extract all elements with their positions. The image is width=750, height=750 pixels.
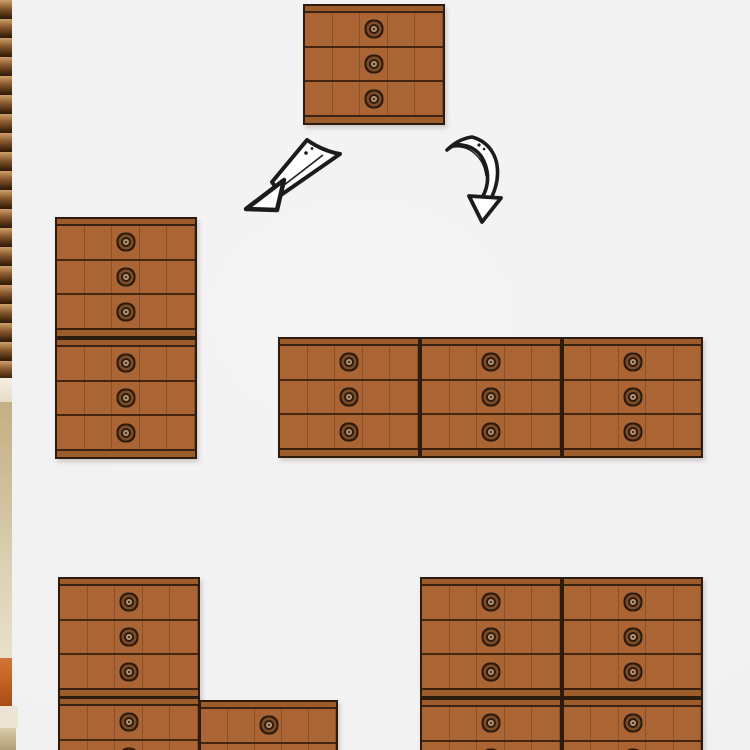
drawer-front-panel — [140, 295, 168, 328]
cabinet-top-trim — [57, 219, 195, 226]
drawer-row — [280, 415, 418, 448]
drawer-knob-icon — [123, 274, 129, 280]
drawer-front-panel — [88, 586, 116, 619]
l-shape-3-module — [199, 700, 338, 750]
drawer-front-panel — [564, 621, 591, 654]
drawer-front-panel — [305, 13, 333, 46]
drawer-front-panel — [564, 586, 591, 619]
drawer-front-panel — [167, 347, 195, 380]
drawer-knob-icon — [123, 430, 129, 436]
cabinet-top-trim — [60, 699, 198, 706]
drawer-front-panel — [60, 741, 88, 750]
drawer-knob-icon — [488, 394, 494, 400]
drawer-knob-icon — [630, 669, 636, 675]
drawer-front-panel — [60, 586, 88, 619]
drawer-front-panel — [591, 655, 618, 688]
drawer-front-panel — [422, 742, 450, 750]
drawer-front-panel — [167, 416, 195, 449]
drawer-front-panel — [363, 381, 391, 414]
drawer-front-panel — [390, 415, 418, 448]
drawer-row — [422, 742, 560, 750]
drawer-front-panel — [422, 621, 450, 654]
drawer-front-panel — [415, 48, 443, 81]
drawer-row — [201, 709, 336, 744]
drawer-knob-icon — [488, 429, 494, 435]
drawer-front-panel — [282, 709, 309, 742]
floor-shadow — [0, 728, 16, 750]
drawer-front-panel — [60, 655, 88, 688]
drawer-front-panel — [280, 381, 308, 414]
drawer-front-panel — [143, 655, 171, 688]
drawer-front-panel — [450, 655, 478, 688]
drawer-row — [57, 347, 195, 382]
drawer-knob-icon — [630, 394, 636, 400]
grid-2x2-module — [562, 577, 703, 698]
cabinet-front — [422, 707, 560, 750]
stack-2-vertical-module — [55, 217, 197, 338]
drawer-front-panel — [564, 707, 591, 740]
cabinet-combination-illustration — [0, 0, 750, 750]
drawer-front-panel — [591, 415, 618, 448]
drawer-row — [201, 744, 336, 750]
drawer-front-panel — [388, 82, 416, 115]
drawer-row — [564, 381, 701, 416]
drawer-front-panel — [305, 82, 333, 115]
drawer-front-panel — [88, 706, 116, 739]
drawer-front-panel — [333, 48, 361, 81]
drawer-knob-icon — [630, 359, 636, 365]
cabinet-front — [564, 586, 701, 688]
drawer-front-panel — [646, 621, 673, 654]
cabinet-base-trim — [280, 448, 418, 456]
drawer-knob-icon — [488, 634, 494, 640]
arrow-sketch-dot — [311, 147, 314, 150]
drawer-row — [564, 742, 701, 750]
cabinet-front — [57, 347, 195, 449]
drawer-row — [280, 346, 418, 381]
drawer-knob-icon — [346, 394, 352, 400]
drawer-front-panel — [564, 742, 591, 750]
cabinet-front — [60, 586, 198, 688]
floor-light — [0, 706, 18, 728]
drawer-row — [60, 706, 198, 741]
drawer-front-panel — [57, 226, 85, 259]
drawer-row — [57, 226, 195, 261]
drawer-front-panel — [619, 742, 646, 750]
drawer-row — [422, 586, 560, 621]
drawer-front-panel — [532, 381, 560, 414]
drawer-front-panel — [309, 709, 336, 742]
drawer-front-panel — [532, 415, 560, 448]
drawer-front-panel — [532, 742, 560, 750]
drawer-front-panel — [280, 346, 308, 379]
drawer-front-panel — [646, 586, 673, 619]
drawer-front-panel — [143, 706, 171, 739]
drawer-front-panel — [505, 381, 533, 414]
drawer-front-panel — [390, 381, 418, 414]
drawer-front-panel — [88, 655, 116, 688]
drawer-front-panel — [450, 346, 478, 379]
drawer-front-panel — [305, 48, 333, 81]
cabinet-top-trim — [564, 700, 701, 707]
drawer-front-panel — [85, 382, 113, 415]
arrow-sketch-dot — [477, 143, 480, 146]
drawer-front-panel — [674, 346, 701, 379]
drawer-row — [564, 415, 701, 448]
drawer-front-panel — [57, 416, 85, 449]
drawer-front-panel — [477, 742, 505, 750]
drawer-front-panel — [140, 261, 168, 294]
drawer-row — [564, 586, 701, 621]
drawer-knob-icon — [126, 634, 132, 640]
drawer-front-panel — [532, 707, 560, 740]
drawer-front-panel — [564, 381, 591, 414]
drawer-row — [422, 381, 560, 416]
cabinet-front — [201, 709, 336, 750]
drawer-front-panel — [88, 621, 116, 654]
drawer-front-panel — [170, 706, 198, 739]
cabinet-base-trim — [60, 688, 198, 696]
row-3-horizontal-module — [278, 337, 420, 458]
drawer-front-panel — [532, 655, 560, 688]
drawer-front-panel — [170, 586, 198, 619]
single-module-module — [303, 4, 445, 125]
drawer-front-panel — [505, 621, 533, 654]
drawer-front-panel — [115, 741, 143, 750]
arrow-sketch-dot — [483, 148, 486, 151]
cabinet-front — [564, 346, 701, 448]
drawer-front-panel — [505, 707, 533, 740]
cream-furniture — [0, 402, 12, 658]
drawer-front-panel — [674, 415, 701, 448]
drawer-front-panel — [646, 655, 673, 688]
drawer-knob-icon — [630, 429, 636, 435]
arrow-down-left-icon — [243, 138, 343, 213]
cabinet-front — [57, 226, 195, 328]
drawer-front-panel — [422, 415, 450, 448]
drawer-front-panel — [505, 742, 533, 750]
drawer-front-panel — [333, 13, 361, 46]
drawer-front-panel — [646, 346, 673, 379]
drawer-row — [57, 416, 195, 449]
drawer-front-panel — [674, 381, 701, 414]
drawer-row — [422, 415, 560, 448]
drawer-front-panel — [450, 586, 478, 619]
drawer-row — [564, 655, 701, 688]
drawer-row — [60, 655, 198, 688]
cabinet-top-trim — [564, 339, 701, 346]
drawer-front-panel — [422, 655, 450, 688]
drawer-row — [305, 13, 443, 48]
drawer-knob-icon — [123, 309, 129, 315]
drawer-front-panel — [60, 706, 88, 739]
drawer-front-panel — [85, 226, 113, 259]
drawer-front-panel — [646, 381, 673, 414]
drawer-front-panel — [60, 621, 88, 654]
drawer-front-panel — [140, 347, 168, 380]
drawer-front-panel — [646, 707, 673, 740]
drawer-front-panel — [201, 744, 228, 750]
drawer-front-panel — [505, 655, 533, 688]
drawer-front-panel — [390, 346, 418, 379]
drawer-front-panel — [170, 741, 198, 750]
drawer-front-panel — [422, 586, 450, 619]
drawer-knob-icon — [346, 429, 352, 435]
cabinet-top-trim — [57, 340, 195, 347]
arrow-head — [246, 180, 284, 210]
drawer-front-panel — [505, 415, 533, 448]
drawer-front-panel — [333, 82, 361, 115]
row-3-horizontal-module — [562, 337, 703, 458]
drawer-front-panel — [143, 586, 171, 619]
drawer-front-panel — [388, 13, 416, 46]
drawer-row — [422, 655, 560, 688]
drawer-knob-icon — [630, 720, 636, 726]
drawer-row — [564, 621, 701, 656]
drawer-front-panel — [422, 707, 450, 740]
drawer-front-panel — [505, 346, 533, 379]
drawer-front-panel — [646, 742, 673, 750]
drawer-front-panel — [140, 226, 168, 259]
drawer-row — [57, 295, 195, 328]
cabinet-top-trim — [422, 700, 560, 707]
row-3-horizontal-module — [420, 337, 562, 458]
drawer-front-panel — [363, 415, 391, 448]
drawer-row — [60, 621, 198, 656]
drawer-front-panel — [450, 707, 478, 740]
drawer-front-panel — [167, 261, 195, 294]
drawer-front-panel — [308, 381, 336, 414]
cabinet-base-trim — [57, 449, 195, 457]
cabinet-base-trim — [564, 448, 701, 456]
cabinet-top-trim — [422, 579, 560, 586]
arrow-sketch-dot — [304, 151, 308, 155]
drawer-front-panel — [57, 347, 85, 380]
cabinet-base-trim — [305, 115, 443, 123]
drawer-front-panel — [532, 586, 560, 619]
cabinet-top-trim — [280, 339, 418, 346]
l-shape-3-module — [58, 697, 200, 750]
orange-cushion — [0, 658, 12, 706]
drawer-front-panel — [167, 226, 195, 259]
drawer-knob-icon — [266, 722, 272, 728]
drawer-front-panel — [308, 415, 336, 448]
arrow-head — [469, 196, 501, 222]
drawer-front-panel — [674, 707, 701, 740]
grid-2x2-module — [420, 698, 562, 750]
drawer-front-panel — [228, 744, 255, 750]
window-glow — [0, 378, 12, 402]
drawer-front-panel — [167, 295, 195, 328]
l-shape-3-module — [58, 577, 200, 698]
drawer-front-panel — [143, 621, 171, 654]
room-photo-edge — [0, 0, 20, 750]
drawer-row — [280, 381, 418, 416]
drawer-front-panel — [415, 82, 443, 115]
drawer-knob-icon — [126, 669, 132, 675]
wooden-blinds — [0, 0, 12, 378]
drawer-front-panel — [415, 13, 443, 46]
drawer-row — [305, 48, 443, 83]
drawer-front-panel — [532, 346, 560, 379]
drawer-front-panel — [140, 382, 168, 415]
drawer-front-panel — [450, 621, 478, 654]
drawer-front-panel — [591, 707, 618, 740]
drawer-front-panel — [85, 416, 113, 449]
drawer-front-panel — [255, 744, 282, 750]
drawer-front-panel — [309, 744, 336, 750]
drawer-row — [57, 261, 195, 296]
drawer-knob-icon — [488, 669, 494, 675]
cabinet-front — [422, 586, 560, 688]
cabinet-front — [564, 707, 701, 750]
drawer-front-panel — [57, 382, 85, 415]
grid-2x2-module — [420, 577, 562, 698]
drawer-row — [305, 82, 443, 115]
drawer-front-panel — [363, 346, 391, 379]
drawer-front-panel — [422, 381, 450, 414]
drawer-knob-icon — [630, 599, 636, 605]
cabinet-top-trim — [201, 702, 336, 709]
drawer-front-panel — [505, 586, 533, 619]
drawer-front-panel — [201, 709, 228, 742]
drawer-front-panel — [450, 415, 478, 448]
drawer-front-panel — [674, 655, 701, 688]
drawer-front-panel — [450, 381, 478, 414]
drawer-front-panel — [167, 382, 195, 415]
drawer-front-panel — [646, 415, 673, 448]
drawer-front-panel — [532, 621, 560, 654]
drawer-front-panel — [591, 381, 618, 414]
drawer-front-panel — [422, 346, 450, 379]
drawer-front-panel — [564, 655, 591, 688]
drawer-knob-icon — [630, 634, 636, 640]
cabinet-front — [60, 706, 198, 750]
cabinet-top-trim — [60, 579, 198, 586]
drawer-front-panel — [88, 741, 116, 750]
drawer-front-panel — [85, 295, 113, 328]
drawer-front-panel — [308, 346, 336, 379]
drawer-front-panel — [85, 261, 113, 294]
drawer-front-panel — [450, 742, 478, 750]
drawer-row — [422, 346, 560, 381]
drawer-row — [564, 707, 701, 742]
grid-2x2-module — [562, 698, 703, 750]
drawer-front-panel — [170, 655, 198, 688]
drawer-front-panel — [170, 621, 198, 654]
drawer-row — [564, 346, 701, 381]
drawer-front-panel — [674, 621, 701, 654]
drawer-front-panel — [85, 347, 113, 380]
drawer-front-panel — [282, 744, 309, 750]
cabinet-base-trim — [422, 688, 560, 696]
drawer-front-panel — [674, 586, 701, 619]
drawer-knob-icon — [123, 395, 129, 401]
drawer-front-panel — [57, 261, 85, 294]
drawer-row — [422, 707, 560, 742]
drawer-row — [60, 741, 198, 750]
drawer-row — [57, 382, 195, 417]
cabinet-base-trim — [564, 688, 701, 696]
stack-2-vertical-module — [55, 338, 197, 459]
drawer-front-panel — [57, 295, 85, 328]
drawer-front-panel — [564, 415, 591, 448]
drawer-front-panel — [591, 621, 618, 654]
drawer-front-panel — [591, 586, 618, 619]
cabinet-front — [280, 346, 418, 448]
cabinet-front — [305, 13, 443, 115]
drawer-front-panel — [143, 741, 171, 750]
drawer-front-panel — [280, 415, 308, 448]
cabinet-base-trim — [422, 448, 560, 456]
drawer-front-panel — [140, 416, 168, 449]
drawer-row — [60, 586, 198, 621]
cabinet-top-trim — [422, 339, 560, 346]
drawer-knob-icon — [371, 61, 377, 67]
cabinet-top-trim — [564, 579, 701, 586]
cabinet-base-trim — [57, 328, 195, 336]
drawer-front-panel — [591, 346, 618, 379]
drawer-front-panel — [674, 742, 701, 750]
cabinet-front — [422, 346, 560, 448]
drawer-front-panel — [228, 709, 255, 742]
arrow-down-right-icon — [444, 134, 506, 224]
cabinet-top-trim — [305, 6, 443, 13]
drawer-front-panel — [564, 346, 591, 379]
drawer-row — [422, 621, 560, 656]
drawer-front-panel — [591, 742, 618, 750]
drawer-front-panel — [388, 48, 416, 81]
drawer-knob-icon — [371, 96, 377, 102]
